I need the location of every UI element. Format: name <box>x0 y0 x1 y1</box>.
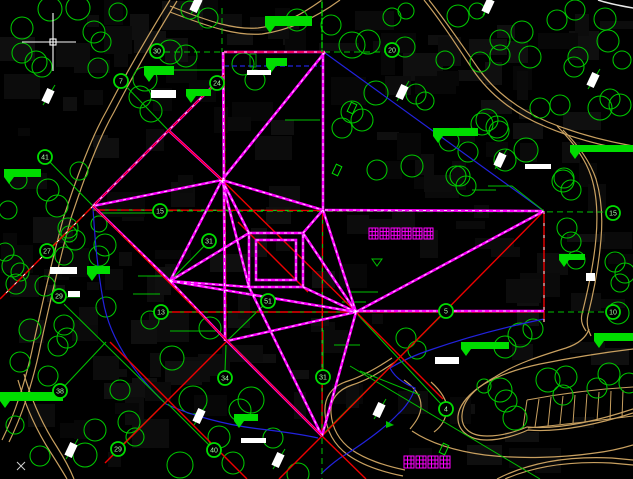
svg-text:31: 31 <box>205 239 213 246</box>
svg-text:24: 24 <box>213 81 221 88</box>
svg-text:4: 4 <box>444 407 448 414</box>
svg-text:38: 38 <box>56 389 64 396</box>
svg-text:15: 15 <box>156 209 164 216</box>
svg-text:20: 20 <box>388 48 396 55</box>
svg-text:10: 10 <box>609 310 617 317</box>
svg-text:40: 40 <box>210 448 218 455</box>
svg-text:5: 5 <box>444 309 448 316</box>
svg-text:7: 7 <box>119 79 123 86</box>
svg-text:30: 30 <box>153 49 161 56</box>
svg-text:29: 29 <box>55 294 63 301</box>
svg-text:41: 41 <box>41 155 49 162</box>
svg-text:34: 34 <box>221 376 229 383</box>
svg-text:13: 13 <box>157 310 165 317</box>
svg-text:27: 27 <box>43 249 51 256</box>
svg-text:15: 15 <box>609 211 617 218</box>
svg-text:29: 29 <box>114 447 122 454</box>
svg-text:51: 51 <box>264 299 272 306</box>
svg-text:31: 31 <box>319 375 327 382</box>
